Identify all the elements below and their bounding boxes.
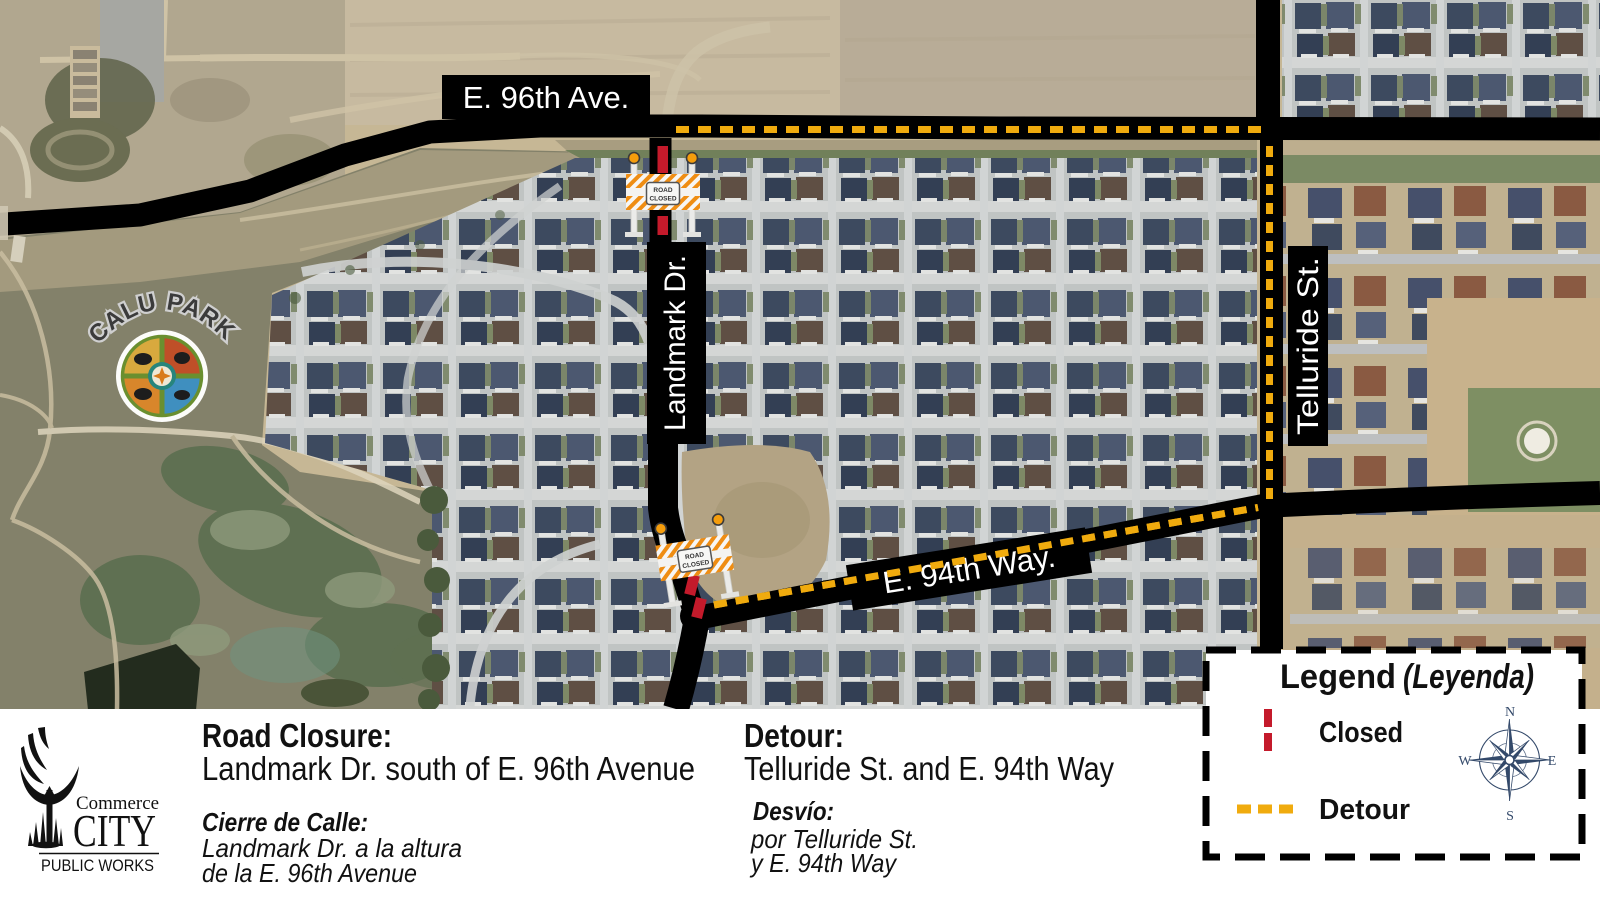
svg-text:Road Closure:: Road Closure:	[202, 717, 392, 754]
svg-text:de la E. 96th Avenue: de la E. 96th Avenue	[202, 858, 417, 888]
svg-text:y E. 94th Way: y E. 94th Way	[749, 848, 898, 878]
svg-text:Landmark Dr. south of E. 96th: Landmark Dr. south of E. 96th Avenue	[202, 750, 695, 787]
svg-text:W: W	[1458, 754, 1472, 769]
svg-text:E. 96th Ave.: E. 96th Ave.	[463, 80, 630, 115]
svg-text:N: N	[1505, 705, 1515, 720]
svg-text:Detour:: Detour:	[744, 717, 844, 754]
svg-text:Telluride St.: Telluride St.	[1292, 257, 1325, 435]
svg-text:S: S	[1506, 809, 1514, 824]
svg-text:CITY: CITY	[73, 805, 156, 856]
svg-text:Landmark Dr.: Landmark Dr.	[659, 255, 692, 431]
svg-text:(Leyenda): (Leyenda)	[1403, 658, 1534, 696]
svg-text:E: E	[1548, 754, 1557, 769]
svg-text:Desvío:: Desvío:	[753, 796, 834, 826]
svg-text:Closed: Closed	[1319, 717, 1403, 749]
svg-text:Detour: Detour	[1319, 794, 1410, 826]
svg-text:Telluride St. and E. 94th Way: Telluride St. and E. 94th Way	[744, 750, 1114, 787]
svg-text:PUBLIC WORKS: PUBLIC WORKS	[41, 857, 154, 875]
svg-text:Legend: Legend	[1280, 658, 1396, 696]
svg-text:CLOSED: CLOSED	[649, 196, 676, 203]
svg-text:ROAD: ROAD	[653, 187, 672, 194]
